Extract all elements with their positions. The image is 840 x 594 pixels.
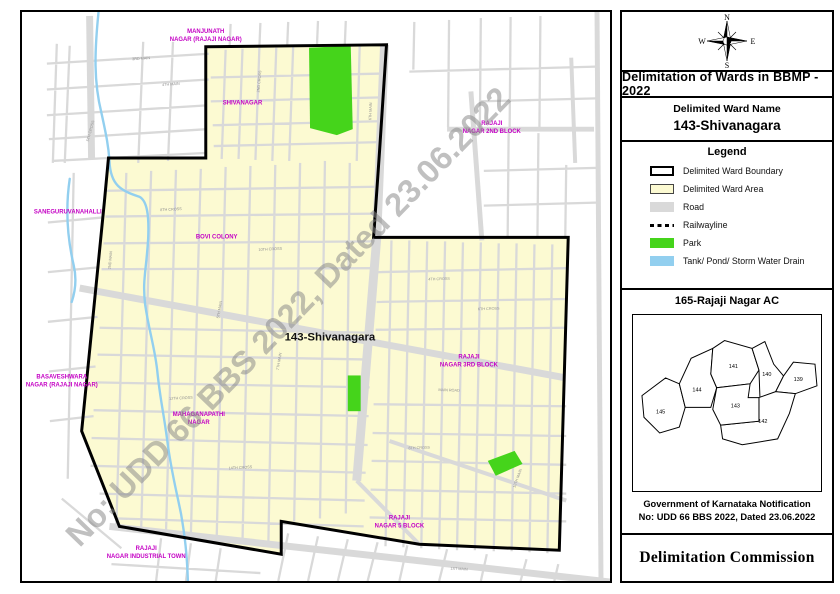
area-label: NAGAR 5 BLOCK (375, 523, 425, 529)
area-label: NAGAR 3RD BLOCK (440, 363, 499, 369)
legend-item: Park (622, 234, 832, 252)
inset-ward-number-143: 143 (730, 403, 739, 409)
area-label: RAJAJI (458, 355, 479, 361)
street-label: MAIN ROAD (438, 388, 460, 393)
street-label: 4TH CROSS (428, 277, 450, 282)
legend-item-label: Road (683, 202, 704, 212)
road-swatch-icon (650, 202, 674, 212)
compass-section: N S E W (622, 12, 832, 72)
legend-heading: Legend (622, 146, 832, 158)
legend-item: Delimited Ward Boundary (622, 162, 832, 180)
area-label: SANEGURUVANAHALLI (34, 210, 102, 216)
inset-ward-number-145: 145 (656, 409, 665, 415)
compass-e: E (751, 37, 756, 46)
legend-item: Delimited Ward Area (622, 180, 832, 198)
legend-item-label: Delimited Ward Boundary (683, 166, 783, 176)
inset-ward-number-141: 141 (728, 364, 737, 370)
commission-title: Delimitation Commission (639, 549, 814, 567)
assembly-constituency-section: 165-Rajaji Nagar AC 14514414114013914314… (622, 290, 832, 535)
inset-ward-number-140: 140 (762, 372, 771, 378)
inset-ward-shapes (641, 341, 816, 445)
railway-swatch-icon (650, 224, 674, 227)
legend-item: Railwayline (622, 216, 832, 234)
area-label: 143-Shivanagara (285, 332, 376, 344)
legend-item: Road (622, 198, 832, 216)
main-map: MANJUNATHNAGAR (RAJAJI NAGAR)SHIVANAGARR… (22, 12, 610, 581)
area-label: MANJUNATH (187, 29, 224, 35)
boundary-swatch-icon (650, 166, 674, 176)
inset-ward-number-139: 139 (793, 377, 802, 383)
ac-inset-map: 145144141140139143142 (634, 315, 821, 490)
notification-line1: Government of Karnataka Notification (622, 498, 832, 511)
inset-ward-144 (679, 348, 716, 407)
area-label: NAGAR (RAJAJI NAGAR) (26, 382, 98, 388)
inset-ward-number-142: 142 (758, 419, 767, 425)
area-swatch-icon (650, 184, 674, 194)
area-label: RAJAJI (389, 515, 410, 521)
area-label: BOVI COLONY (196, 234, 238, 240)
ward-name-section: Delimited Ward Name 143-Shivanagara (622, 98, 832, 142)
compass-w: W (698, 37, 706, 46)
inset-ward-145 (641, 378, 684, 433)
legend-item: Tank/ Pond/ Storm Water Drain (622, 252, 832, 270)
info-panel: N S E W Delimitation of Wards in BBMP - … (620, 10, 834, 583)
notification-line2: No: UDD 66 BBS 2022, Dated 23.06.2022 (622, 511, 832, 524)
main-map-frame: MANJUNATHNAGAR (RAJAJI NAGAR)SHIVANAGARR… (20, 10, 612, 583)
compass-n: N (724, 13, 730, 22)
area-label: NAGAR (RAJAJI NAGAR) (170, 37, 242, 43)
ward-name: 143-Shivanagara (622, 118, 832, 133)
legend-items: Delimited Ward BoundaryDelimited Ward Ar… (622, 162, 832, 270)
area-label: RAJAJI (136, 546, 157, 552)
legend-item-label: Park (683, 238, 701, 248)
ac-title: 165-Rajaji Nagar AC (622, 295, 832, 307)
inset-ward-number-144: 144 (692, 388, 701, 394)
street-label: 4TH MAIN (162, 82, 180, 87)
commission-section: Delimitation Commission (622, 535, 832, 581)
street-label: 6TH MAIN (368, 102, 373, 120)
area-label: SHIVANAGAR (223, 100, 263, 106)
street-label: 6TH CROSS (478, 307, 500, 312)
park-swatch-icon (650, 238, 674, 248)
ward-name-heading: Delimited Ward Name (622, 103, 832, 115)
compass-rose-icon: N S E W (682, 13, 772, 69)
street-label: 1ST MAIN (450, 567, 468, 572)
street-label: 3RD MAIN (132, 56, 151, 61)
map-title: Delimitation of Wards in BBMP - 2022 (622, 70, 832, 98)
map-sheet: MANJUNATHNAGAR (RAJAJI NAGAR)SHIVANAGARR… (0, 0, 840, 594)
street-label: 8TH CROSS (408, 446, 430, 451)
legend-item-label: Tank/ Pond/ Storm Water Drain (683, 256, 804, 266)
area-label: BASAVESHWARA (36, 374, 87, 380)
legend-section: Legend Delimited Ward BoundaryDelimited … (622, 142, 832, 290)
ac-inset-map-box: 145144141140139143142 (632, 314, 822, 492)
legend-item-label: Railwayline (683, 220, 728, 230)
area-label: NAGAR INDUSTRIAL TOWN (107, 554, 186, 560)
legend-item-label: Delimited Ward Area (683, 184, 763, 194)
compass-s: S (725, 61, 729, 69)
tank-swatch-icon (650, 256, 674, 266)
park-small-mid (348, 375, 361, 411)
title-section: Delimitation of Wards in BBMP - 2022 (622, 72, 832, 98)
park-large (309, 46, 353, 135)
